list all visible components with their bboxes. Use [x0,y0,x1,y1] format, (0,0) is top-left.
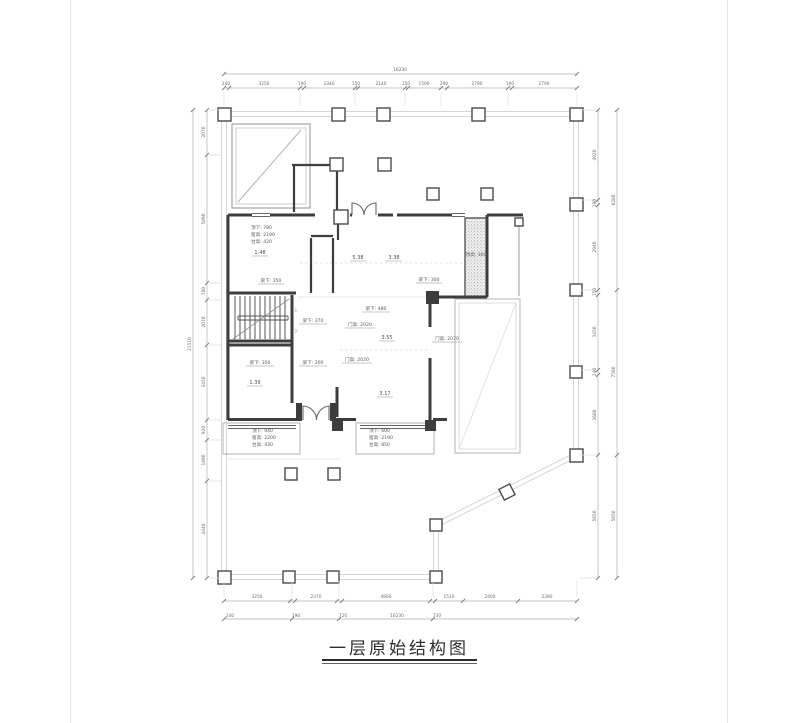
column [327,571,339,583]
dim-label: 2400 [485,594,496,600]
door-note: 门高: 2070 [435,335,459,342]
dim-label: 190 [506,81,514,87]
dimension-labels: 16230 240 3250 190 2340 150 2140 150 150… [187,67,617,619]
level-label: 3.17 [379,391,390,397]
column [430,571,442,583]
dim-bottom-overall: 16230 [390,613,404,619]
dim-label: 1510 [444,594,455,600]
dim-label: 2370 [311,594,322,600]
dim-label: 2140 [376,81,387,87]
drawing-title: 一层原始结构图 [329,639,469,659]
column [481,188,493,200]
level-label: 5.38 [352,255,363,261]
window-note: 台高: 430 [252,441,273,448]
dim-label: 3680 [592,409,598,420]
dim-label: 5650 [611,510,617,521]
dim-label: 5650 [592,510,598,521]
dim-label: 240 [226,613,234,619]
window-note: 顶下: 940 [252,428,273,434]
dim-label: 150 [352,81,360,87]
drawing-title-block: 一层原始结构图 [322,639,477,664]
column [283,571,295,583]
level-label: 3.38 [388,255,399,261]
door-jamb [296,403,302,421]
column [332,108,345,121]
door-note: 门高: 2020 [345,356,369,363]
pier [426,291,439,304]
level-label: 1.39 [249,380,260,386]
dim-label: 720 [339,613,347,619]
column [334,210,348,224]
dim-label: 7590 [611,366,617,377]
beam-note: 梁下: 200 [303,359,324,366]
beam-note: 梁下: 350 [250,359,271,366]
floor-plan-canvas: 16230 240 3250 190 2340 150 2140 150 150… [0,0,798,723]
dim-label: 240 [222,81,230,87]
beam-note: 梁下: 480 [366,305,387,312]
dim-label: 1890 [201,454,207,465]
dim-top-overall: 16230 [393,67,407,73]
column [285,468,297,480]
dim-label: 190 [592,199,598,207]
dim-label: 8280 [611,194,617,205]
dim-label: 290 [440,81,448,87]
column [330,158,343,171]
dim-label: 4440 [201,523,207,534]
dim-label: 190 [298,81,306,87]
dim-label: 3250 [259,81,270,87]
column [218,571,231,584]
annotations: 顶下: 780 窗高: 2190 台高: 420 1.48 梁下: 350 5.… [246,225,487,448]
terrace-double-door-bottom [303,406,329,420]
floor-plan-page: 16230 240 3250 190 2340 150 2140 150 150… [0,0,798,723]
column [515,218,523,226]
window-note: 窗高: 2200 [252,434,276,441]
window-bay-right-tall [455,299,520,453]
dim-label: 190 [292,613,300,619]
dim-label: 240 [592,368,598,376]
window-note: 窗高: 2190 [251,231,275,238]
level-label: 1.48 [254,250,265,256]
dim-label: 2790 [472,81,483,87]
dim-label: 4660 [381,594,392,600]
dim-label: 3450 [592,326,598,337]
column [430,519,442,531]
column [472,108,485,121]
dim-label: 3250 [252,594,263,600]
staircase [233,296,289,339]
window-note: 顶下: 780 [251,225,272,231]
dim-label: 4920 [592,149,598,160]
dim-label: 2390 [542,594,553,600]
dim-label: 2940 [592,241,598,252]
ceiling-note: 顶高: 300 [466,251,487,258]
beam-note: 梁下: 350 [261,277,282,284]
beam-note: 梁下: 370 [303,317,324,324]
pier [425,420,436,431]
dim-label: 1500 [419,81,430,87]
column [377,108,390,121]
window-note: 台高: 420 [251,238,272,245]
dim-label: 920 [201,426,207,434]
dim-label: 150 [592,288,598,296]
dim-label: 2070 [201,126,207,137]
window-note: 台高: 850 [369,441,390,448]
column [378,158,391,171]
pier [332,420,343,431]
beam-note: 梁下: 300 [419,276,440,283]
dim-label: 2340 [324,81,335,87]
dim-label: 2070 [201,316,207,327]
dim-label: 3450 [201,376,207,387]
stair-down-label: 下 [294,329,298,334]
stair-up-label: 上 [294,306,298,312]
column [328,468,340,480]
column [570,366,582,378]
door-note: 门高: 2020 [348,321,372,328]
dim-label: 730 [433,613,441,619]
entry-double-door-top [352,203,376,215]
dim-label: 150 [402,81,410,87]
window-note: 顶下: 600 [369,428,390,434]
dim-label: 5890 [201,213,207,224]
door-jamb [330,403,336,421]
window-note: 窗高: 2190 [369,434,393,441]
dim-label: 780 [201,287,207,295]
column [570,449,583,462]
level-label: 3.55 [381,335,392,341]
stair-break-line [233,299,289,339]
column [427,188,439,200]
window-bay-bottom-right [356,423,434,454]
dim-left-overall: 21510 [187,337,193,351]
dim-label: 2790 [539,81,550,87]
